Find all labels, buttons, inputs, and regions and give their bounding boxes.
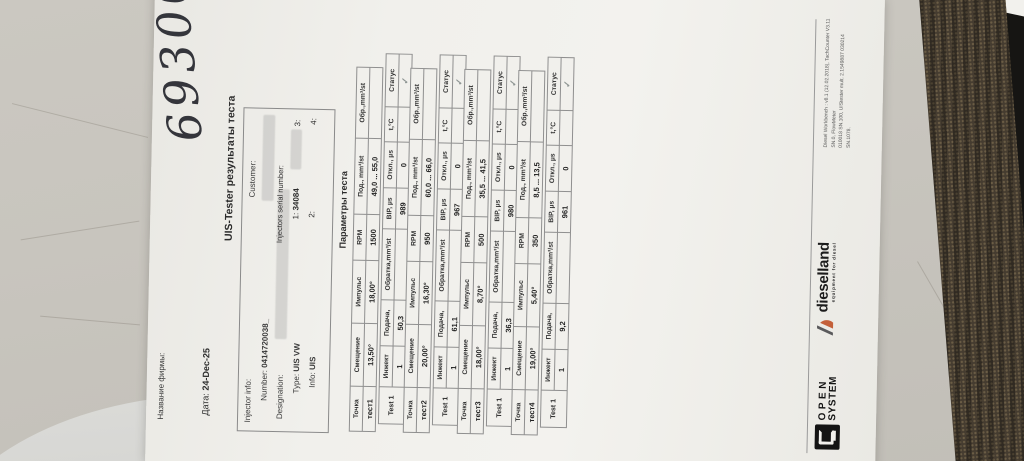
sub-backflow [557,233,570,303]
col-header: Обр.,mm³/st [464,70,477,140]
sub-header: Подача, [543,304,556,349]
sub-header: BIP, µs [383,188,396,228]
col-header: Смещение [459,326,472,388]
test-rpm: 950 [420,216,433,261]
col-header: Точка [350,387,363,431]
sub-header: BIP, µs [437,189,450,229]
sub-header: t,°C [439,108,452,142]
sub-header: Обратка,mm³/st [382,229,395,299]
test-rpm: 500 [474,217,487,262]
designation-label: Designation: [275,375,285,420]
serial-4-label: 4: [309,118,318,125]
test-offset: 20,00° [418,325,431,387]
sub-header: Инжект [542,350,555,390]
col-header: RPM [515,218,528,263]
test-return-range [423,69,436,139]
test-rpm: 350 [528,218,541,263]
open-system-logo: OPEN SYSTEM [814,376,841,450]
company-label: Название фирмы: [156,353,166,420]
date-label: Дата: [200,393,210,416]
test-sub-table: Test 1 Инжект Подача, Обратка,mm³/st BIP… [540,57,575,428]
test-pulse: 5,40° [527,264,540,326]
sub-row-label: Test 1 [541,391,567,428]
serial-4-row: 4: [309,118,318,125]
sub-header: t,°C [385,107,398,141]
serial-3-row: 3: [293,120,302,127]
sub-header: Подача, [489,302,502,347]
col-header: Под., mm³/st [516,142,530,217]
injector-number-row: Number: 0414720038_ [259,319,270,401]
test-pulse: 8,70° [473,263,486,325]
sub-header: Откл., µs [438,143,451,188]
sub-otkl: 0 [559,146,572,191]
col-header: Импульс [406,262,419,324]
test-return-range [531,71,544,141]
col-header: Точка [404,388,417,432]
col-header: RPM [353,215,366,260]
sub-header: Откл., µs [384,142,397,187]
col-header: Импульс [352,261,365,323]
info-row: Info: UIS [308,357,318,388]
sub-inj: 1 [555,350,568,390]
redacted-area [290,129,302,169]
sub-header: BIP, µs [491,191,504,231]
col-header: Обр.,mm³/st [410,69,423,139]
date-row: Дата: 24-Dec-25 [200,348,211,416]
open-system-logo-text: OPEN SYSTEM [818,376,839,421]
test-feed-range: 49,0 ... 55,0 [367,139,381,214]
col-header: Под., mm³/st [354,139,368,214]
test-offset: 18,00° [472,326,485,388]
test-point: тест4 [525,390,538,434]
sub-header: Откл., µs [492,145,505,190]
col-header: Точка [512,390,525,434]
sub-row-label: Test 1 [487,389,513,426]
serial-1-label: 1: [291,213,300,220]
test-return-range [369,68,382,138]
col-header: Обр.,mm³/st [356,68,369,138]
sub-header: t,°C [493,110,506,144]
test-offset: 13,50° [364,324,377,386]
software-version-fineprint: Diesel Workbench : v8.1 (12.02.2018), Ta… [823,13,856,148]
test-feed-range: 60,0 ... 66,0 [421,140,435,215]
col-header: Точка [458,389,471,433]
serial-2-row: 2: [307,211,316,218]
test-pulse: 16,30° [419,262,432,324]
col-header: Под., mm³/st [462,141,476,216]
surface-scratch [21,221,140,241]
col-header: Импульс [514,264,527,326]
serial-1-value: 34084 [291,188,300,210]
sub-header: Обратка,mm³/st [544,233,557,303]
serials-heading: Injectors serial number: [275,165,286,243]
col-header: Импульс [460,263,473,325]
test-return-range [477,70,490,140]
open-system-logo-icon [814,424,840,450]
test-point: тест1 [363,387,376,431]
sub-temp [560,111,573,145]
fabric-edge [919,0,1024,461]
sub-bip: 961 [558,192,571,232]
dieselland-name: dieselland [815,242,831,313]
number-label: Number: [259,370,269,401]
info-value: UIS [308,357,317,371]
test-block-4: Точка Смещение Импульс RPM Под., mm³/st … [511,56,575,436]
number-value: 0414720038_ [260,319,270,368]
sub-feed: 9,2 [556,304,569,349]
dieselland-logo: dieselland equipment for diesel [815,242,837,338]
sub-header: Подача, [435,301,448,346]
sub-header: Статус [440,55,453,107]
test-point: тест2 [417,388,430,432]
test-feed-range: 8,5 ... 13,5 [529,142,543,217]
redacted-area [262,115,276,201]
sub-header: Статус [494,57,507,109]
dieselland-logo-icon [815,315,835,337]
surface-scratch [12,103,148,138]
sub-header: Статус [386,54,399,106]
sub-header: Инжект [434,347,447,387]
params-title: Параметры теста [338,171,350,249]
date-value: 24-Dec-25 [201,348,212,391]
col-header: Смещение [351,324,364,386]
report-document: 69300 Название фирмы: Дата: 24-Dec-25 UI… [152,0,877,461]
type-row: Type: UIS VW [292,343,302,393]
handwritten-number: 69300 [145,0,213,144]
test-point: тест3 [471,389,484,433]
surface-scratch [40,316,140,326]
col-header: RPM [461,217,474,262]
sub-row-label: Test 1 [433,388,459,425]
col-header: Смещение [513,327,526,389]
sub-header: Откл., µs [546,146,559,191]
col-header: Обр.,mm³/st [518,71,531,141]
report-paper: 69300 Название фирмы: Дата: 24-Dec-25 UI… [145,0,885,461]
customer-heading: Customer: [248,160,258,197]
sub-header: t,°C [547,111,560,145]
serial-1-row: 1: 34084 [291,188,301,219]
report-title: UIS-Tester результаты теста [223,95,238,241]
injector-info-heading: Injector info: [243,379,253,423]
type-value: UIS VW [292,343,302,372]
dieselland-logo-text: dieselland equipment for diesel [815,242,837,313]
test-pulse: 18,00° [365,261,378,323]
type-label: Type: [292,374,301,394]
col-header: Под., mm³/st [408,140,422,215]
status-check-icon: ✓ [561,58,574,110]
open-system-line2: SYSTEM [828,376,839,421]
test-feed-range: 35,5 ... 41,5 [475,141,489,216]
sub-header: Обратка,mm³/st [490,231,503,301]
sub-row-label: Test 1 [379,387,405,424]
sub-header: Инжект [380,346,393,386]
sub-header: Обратка,mm³/st [436,230,449,300]
sub-header: BIP, µs [545,192,558,232]
sub-header: Статус [548,58,561,110]
test-offset: 19,00° [526,327,539,389]
col-header: Смещение [405,325,418,387]
sub-header: Подача, [381,300,394,345]
sub-header: Инжект [488,348,501,388]
fineprint-line2: 010018 SN.100, UIStester mult. 2.1549887… [838,14,856,148]
serial-3-label: 3: [293,120,302,127]
photo-scene: 69300 Название фирмы: Дата: 24-Dec-25 UI… [0,0,1024,461]
injector-info-box: Injector info: Number: 0414720038_ Desig… [237,107,336,433]
dieselland-tagline: equipment for diesel [831,242,837,312]
test-rpm: 1500 [366,215,379,260]
serial-2-label: 2: [307,211,316,218]
col-header: RPM [407,216,420,261]
info-label: Info: [308,372,317,388]
